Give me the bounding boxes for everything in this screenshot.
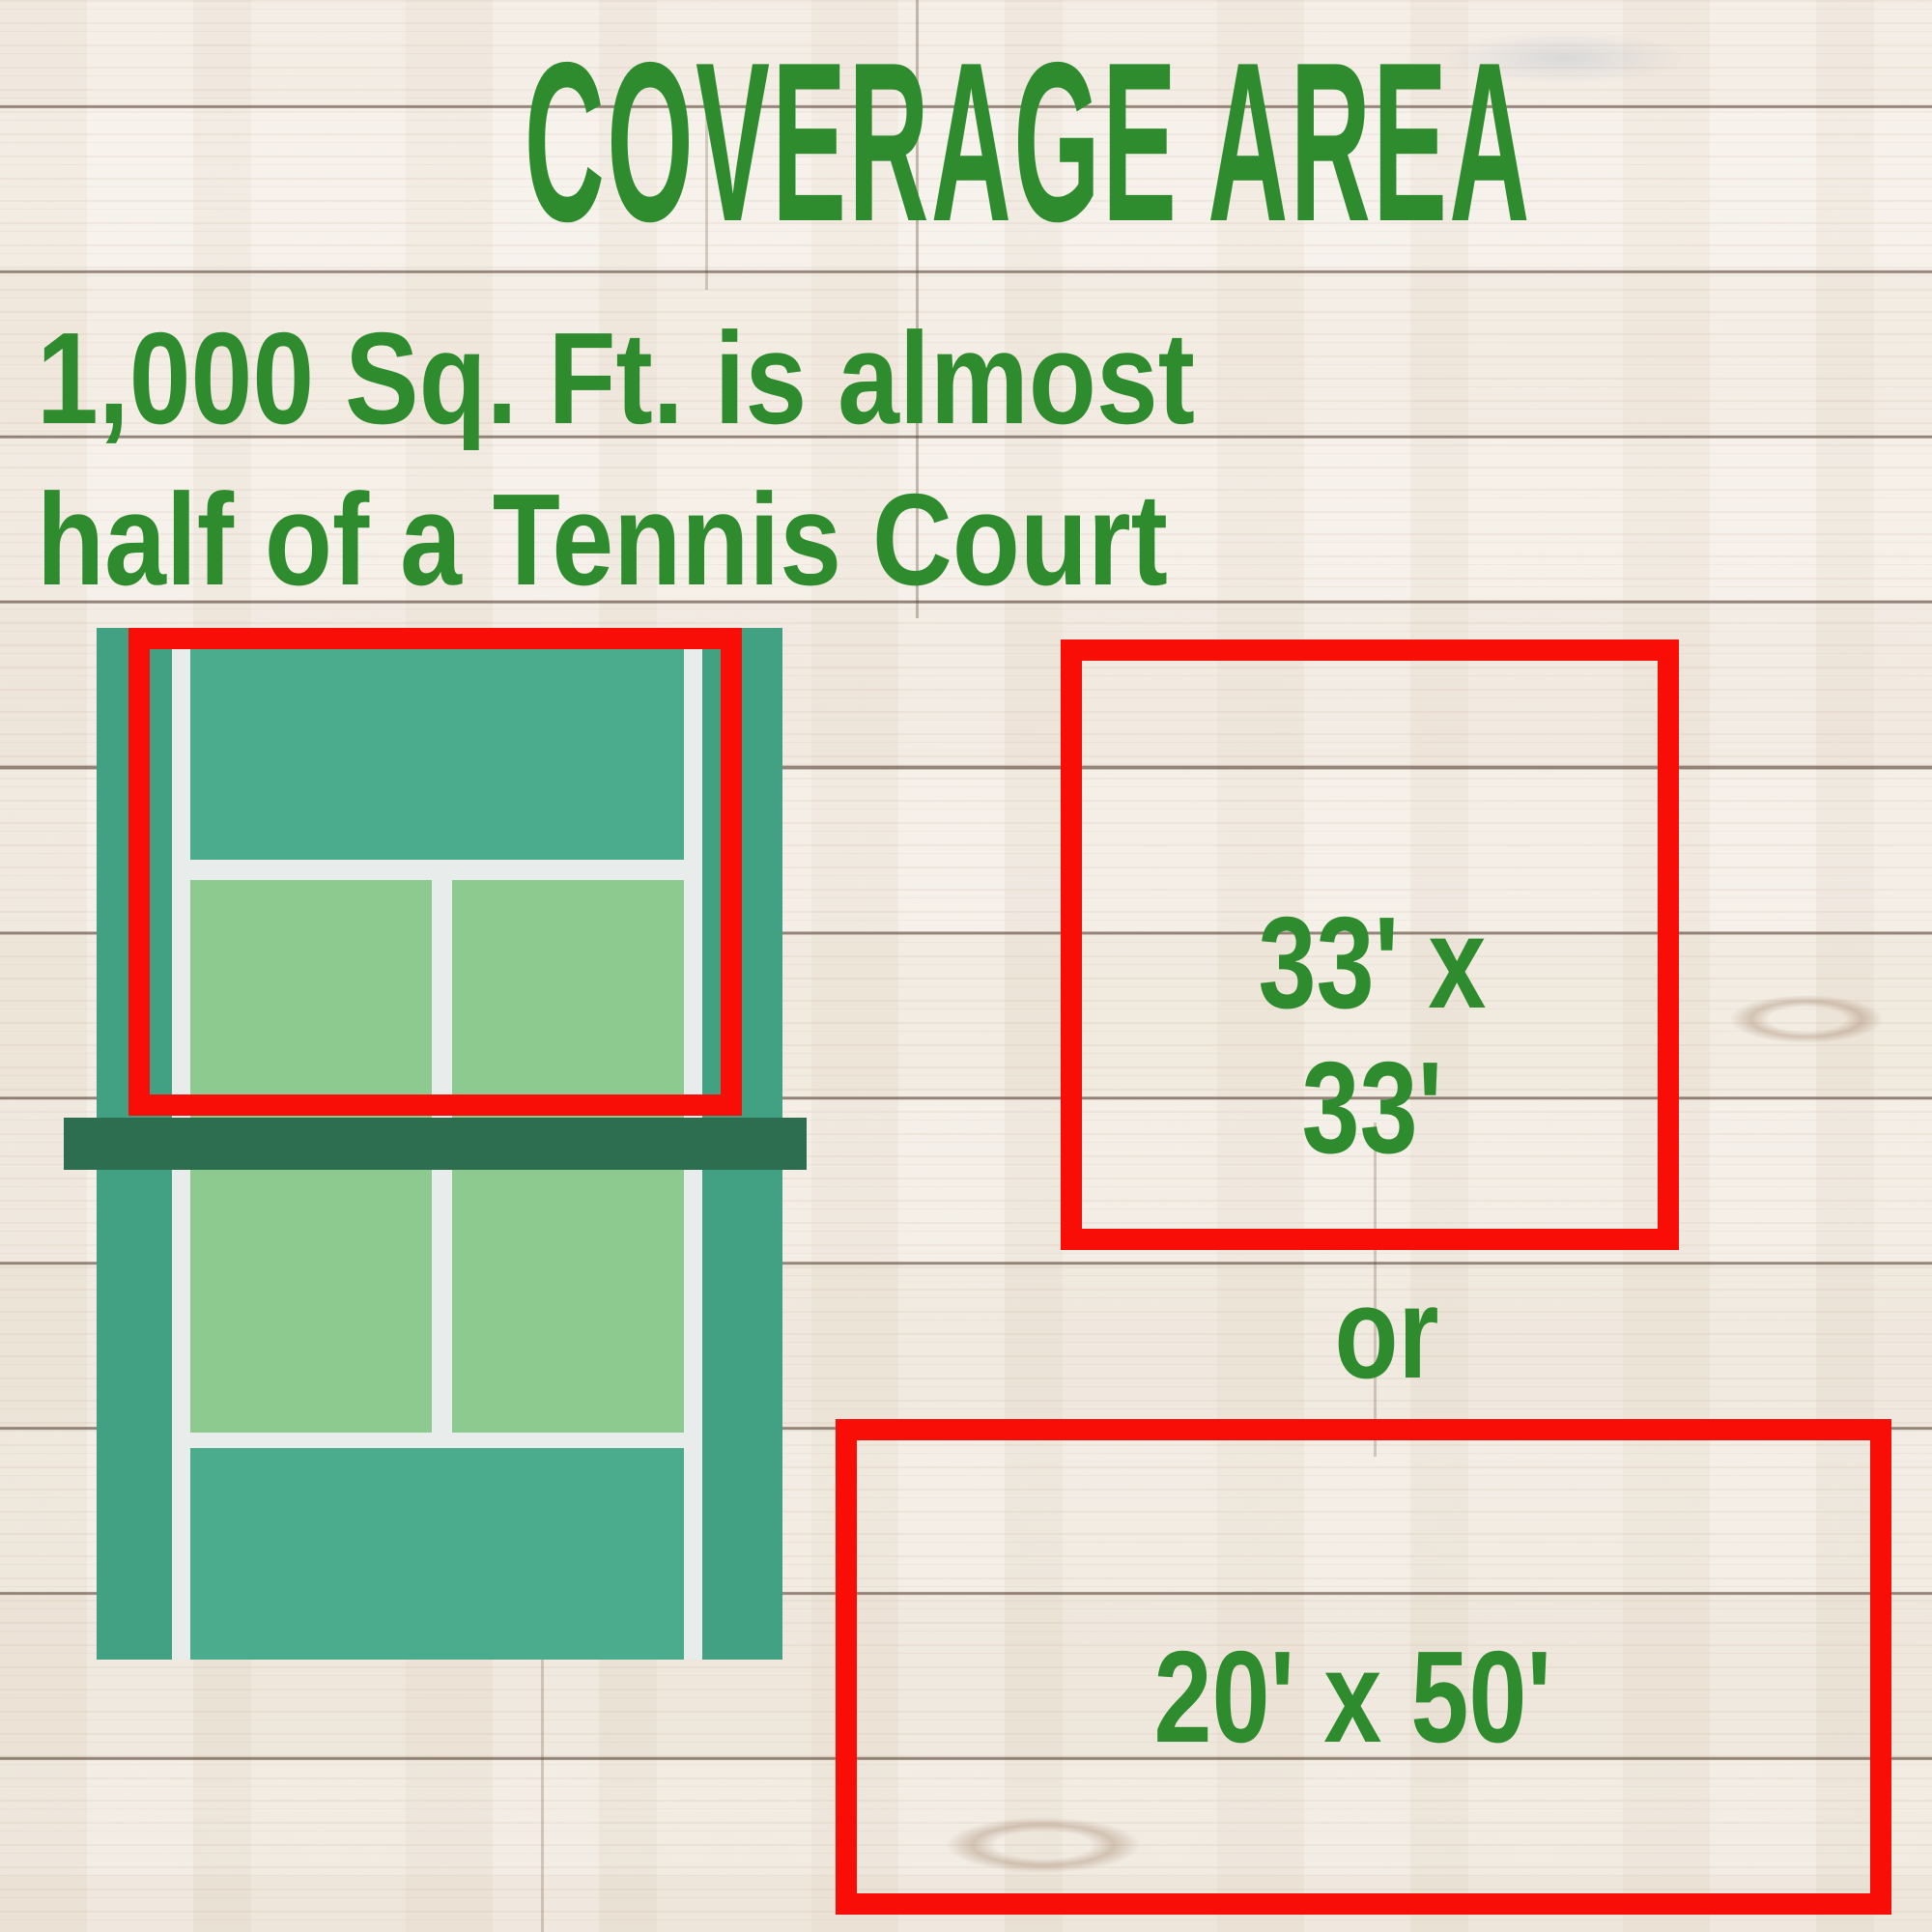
court-service-line-bottom <box>190 1433 684 1448</box>
court-service-box-top-left <box>190 880 432 1118</box>
court-backcourt-bottom <box>190 1448 684 1660</box>
court-backcourt-top <box>190 628 684 860</box>
court-net-band <box>64 1118 807 1170</box>
square-dimension-label: 33' x 33' <box>1130 891 1613 1180</box>
court-center-line-bottom <box>432 1170 452 1433</box>
square-dimension-line-2: 33' <box>1258 1036 1486 1180</box>
court-service-box-bottom-left <box>190 1170 432 1433</box>
infographic-canvas: COVERAGE AREA 1,000 Sq. Ft. is almost ha… <box>0 0 1932 1932</box>
or-separator: or <box>1193 1261 1579 1406</box>
court-service-box-top-right <box>452 880 684 1118</box>
court-center-line-top <box>432 860 452 1118</box>
square-dimension-line-1: 33' x <box>1258 891 1486 1036</box>
rectangle-dimension-label: 20' x 50' <box>1063 1625 1642 1770</box>
tennis-court-illustration <box>0 0 1932 1932</box>
court-service-box-bottom-right <box>452 1170 684 1433</box>
